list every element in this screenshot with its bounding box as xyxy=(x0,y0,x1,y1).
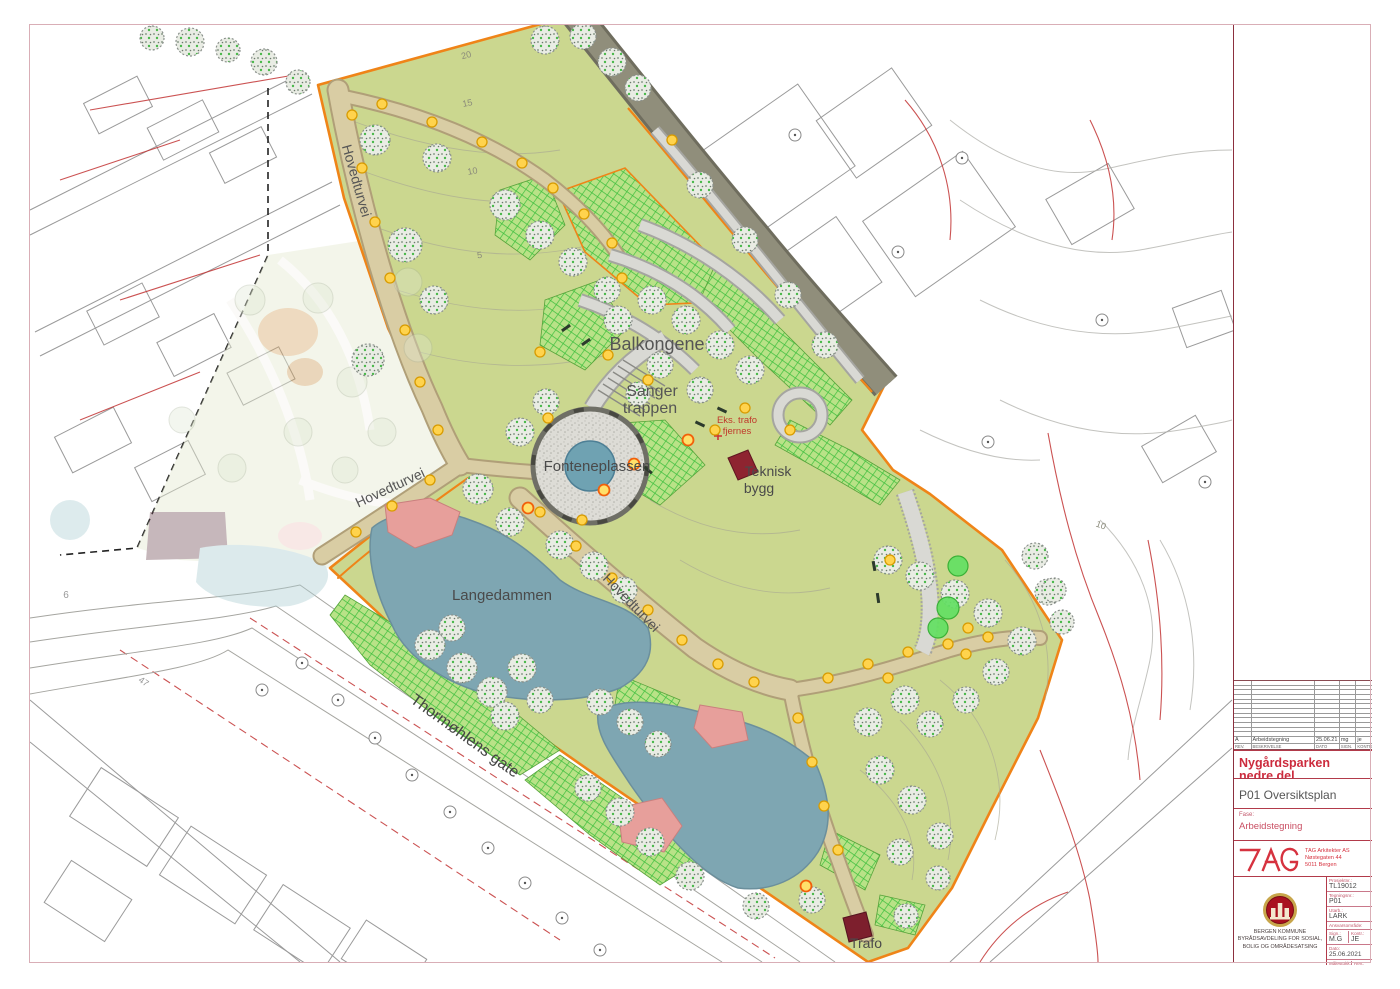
revision-header-row-kontr: KONTR. xyxy=(1355,744,1372,749)
existing-tree xyxy=(420,286,448,314)
lamp-icon xyxy=(477,137,487,147)
map-label-trappen: trappen xyxy=(623,400,677,417)
title-block-bottom: BERGEN KOMMUNE BYRÅDSAVDELING FOR SOSIAL… xyxy=(1234,876,1372,965)
lamp-icon xyxy=(749,677,759,687)
faded-tree xyxy=(394,268,422,296)
lamp-icon xyxy=(548,183,558,193)
revision-table: AArbeidstegning25.06.21mgjeREV.BESKRIVEL… xyxy=(1234,680,1372,750)
lamp-orange-icon xyxy=(801,881,812,892)
existing-tree xyxy=(388,228,422,262)
existing-tree xyxy=(598,48,626,76)
existing-tree xyxy=(1042,578,1066,602)
architect-section: TAG Arkitekter AS Nøstegaten 44 5011 Ber… xyxy=(1234,840,1372,876)
revision-header-row-description: BESKRIVELSE xyxy=(1251,744,1314,749)
lamp-icon xyxy=(370,217,380,227)
lamp-icon xyxy=(963,623,973,633)
existing-tree xyxy=(594,277,620,303)
street-tree-dot xyxy=(561,917,563,919)
faded-tree xyxy=(332,457,358,483)
existing-tree xyxy=(587,689,613,715)
existing-tree xyxy=(575,775,601,801)
field-prosjektnr: Prosjektnr.: TL19012 xyxy=(1327,877,1372,891)
field-malestokk-rev: Målestokk: 1:500 (A1) Rev.: A xyxy=(1327,959,1372,965)
existing-tree xyxy=(531,26,559,54)
existing-tree xyxy=(526,221,554,249)
existing-tree xyxy=(360,125,390,155)
existing-tree xyxy=(1050,610,1074,634)
lamp-icon xyxy=(427,117,437,127)
utarb-value: LARK xyxy=(1329,913,1370,920)
map-label-eks-trafo: Eks. trafo xyxy=(717,415,757,426)
existing-tree xyxy=(559,248,587,276)
existing-tree xyxy=(917,711,943,737)
existing-tree xyxy=(898,786,926,814)
revision-row-a: AArbeidstegning25.06.21mgje xyxy=(1234,736,1372,743)
faded-tree xyxy=(169,407,195,433)
new-tree xyxy=(928,618,948,638)
map-label-10: 10 xyxy=(467,165,479,177)
existing-tree xyxy=(1022,543,1048,569)
existing-tree xyxy=(974,599,1002,627)
existing-tree xyxy=(927,823,953,849)
existing-tree xyxy=(891,686,919,714)
lamp-icon xyxy=(833,845,843,855)
lamp-icon xyxy=(415,377,425,387)
existing-tree xyxy=(672,306,700,334)
lamp-orange-icon xyxy=(599,485,610,496)
street-tree-dot xyxy=(411,774,413,776)
lamp-icon xyxy=(387,501,397,511)
malestokk-label: Målestokk: xyxy=(1329,961,1351,965)
revision-header-row-date: DATO xyxy=(1314,744,1339,749)
existing-tree xyxy=(645,731,671,757)
existing-tree xyxy=(638,286,666,314)
existing-tree xyxy=(251,49,277,75)
existing-tree xyxy=(625,75,651,101)
street-tree-dot xyxy=(374,737,376,739)
existing-tree xyxy=(508,654,536,682)
lamp-icon xyxy=(807,757,817,767)
map-label-trafo: Trafo xyxy=(850,935,882,951)
architect-address-1: Nøstegaten 44 xyxy=(1305,855,1350,862)
lamp-icon xyxy=(667,135,677,145)
lamp-icon xyxy=(607,238,617,248)
map-label-10: 10 xyxy=(1095,519,1108,532)
faded-tree xyxy=(218,454,246,482)
faded-tree xyxy=(235,285,265,315)
map-label-sanger: Sanger xyxy=(626,383,678,400)
existing-tree xyxy=(1008,627,1036,655)
bergen-kommune-seal xyxy=(1261,891,1299,929)
lamp-icon xyxy=(385,273,395,283)
lamp-orange-icon xyxy=(523,503,534,514)
map-label-15: 15 xyxy=(461,97,473,109)
lamp-icon xyxy=(517,158,527,168)
lamp-icon xyxy=(943,639,953,649)
faded-tree xyxy=(368,418,396,446)
faded-tree xyxy=(303,283,333,313)
existing-tree xyxy=(491,702,519,730)
existing-tree xyxy=(736,356,764,384)
existing-tree xyxy=(439,615,465,641)
street-tree-dot xyxy=(794,134,796,136)
dato-value: 25.06.2021 xyxy=(1329,951,1370,958)
existing-tree xyxy=(926,866,950,890)
existing-tree xyxy=(732,227,758,253)
existing-tree xyxy=(463,474,493,504)
street-tree-dot xyxy=(449,811,451,813)
existing-tree xyxy=(140,26,164,50)
existing-tree xyxy=(743,893,769,919)
existing-tree xyxy=(216,38,240,62)
existing-tree xyxy=(490,190,520,220)
map-label-47: 47 xyxy=(137,675,151,689)
lamp-icon xyxy=(577,515,587,525)
lamp-icon xyxy=(425,475,435,485)
existing-tree xyxy=(570,23,596,49)
street-tree-dot xyxy=(524,882,526,884)
phase-section: Fase: Arbeidstegning xyxy=(1234,808,1372,840)
revision-header-row-sign: SIGN. xyxy=(1339,744,1356,749)
lamp-orange-icon xyxy=(683,435,694,446)
existing-tree xyxy=(533,389,559,415)
existing-tree xyxy=(775,282,801,308)
existing-tree xyxy=(447,653,477,683)
lamp-icon xyxy=(793,713,803,723)
project-title: Nygårdsparken nedre del xyxy=(1234,750,1372,778)
lamp-icon xyxy=(377,99,387,109)
street-tree-dot xyxy=(897,251,899,253)
existing-tree xyxy=(604,306,632,334)
existing-tree xyxy=(887,839,913,865)
street-tree-dot xyxy=(987,441,989,443)
street-tree-dot xyxy=(961,157,963,159)
field-dato: Dato: 25.06.2021 xyxy=(1327,944,1372,959)
lamp-icon xyxy=(535,347,545,357)
existing-tree xyxy=(606,798,634,826)
lamp-icon xyxy=(710,425,720,435)
lamp-icon xyxy=(823,673,833,683)
existing-tree xyxy=(953,687,979,713)
lamp-icon xyxy=(571,541,581,551)
kontr-value: JE xyxy=(1351,936,1370,943)
lamp-icon xyxy=(400,325,410,335)
existing-tree xyxy=(894,904,918,928)
existing-tree xyxy=(527,687,553,713)
existing-tree xyxy=(983,659,1009,685)
existing-tree xyxy=(647,352,673,378)
lamp-icon xyxy=(785,425,795,435)
street-tree-dot xyxy=(337,699,339,701)
architect-name: TAG Arkitekter AS xyxy=(1305,848,1350,855)
field-utarb: Utarb.: LARK xyxy=(1327,906,1372,921)
field-sign-kontr: Sign.: M.G Kontr.: JE xyxy=(1327,929,1372,944)
map-label-6: 6 xyxy=(63,590,69,601)
existing-tree xyxy=(506,418,534,446)
lamp-icon xyxy=(819,801,829,811)
client-line-2: BYRÅDSAVDELING FOR SOSIAL, xyxy=(1238,936,1322,943)
plan-sheet: HovedturveiHovedturveiHovedturveiThormøh… xyxy=(0,0,1400,989)
lamp-icon xyxy=(863,659,873,669)
existing-tree xyxy=(906,562,934,590)
revision-header-row: REV.BESKRIVELSEDATOSIGN.KONTR. xyxy=(1234,743,1372,749)
title-block-spacer xyxy=(1234,24,1372,680)
street-tree-dot xyxy=(301,662,303,664)
existing-tree xyxy=(687,172,713,198)
faded-tree xyxy=(284,418,312,446)
lamp-icon xyxy=(579,209,589,219)
field-tegningsnr: Tegningsnr.: P01 xyxy=(1327,891,1372,906)
existing-tree xyxy=(496,508,524,536)
existing-tree xyxy=(812,332,838,358)
tegningsnr-value: P01 xyxy=(1329,898,1370,905)
lamp-icon xyxy=(983,632,993,642)
existing-tree xyxy=(546,531,574,559)
architect-address-2: 5011 Bergen xyxy=(1305,862,1350,869)
ansvar-label: Ansvarsområde: xyxy=(1329,923,1370,928)
drawing-title: P01 Oversiktsplan xyxy=(1234,778,1372,808)
new-tree xyxy=(948,556,968,576)
lamp-icon xyxy=(885,555,895,565)
existing-tree xyxy=(617,709,643,735)
existing-tree xyxy=(352,344,384,376)
map-label-teknisk: Teknisk xyxy=(745,463,793,479)
title-block: AArbeidstegning25.06.21mgjeREV.BESKRIVEL… xyxy=(1233,24,1372,963)
street-tree-dot xyxy=(599,949,601,951)
revision-header-row-rev: REV. xyxy=(1234,744,1251,749)
existing-tree xyxy=(636,828,664,856)
existing-tree xyxy=(854,708,882,736)
phase-label: Fase: xyxy=(1239,812,1367,818)
lamp-icon xyxy=(961,649,971,659)
existing-tree xyxy=(687,377,713,403)
sign-value: M.G xyxy=(1329,936,1348,943)
faded-tree xyxy=(404,334,432,362)
lamp-icon xyxy=(883,673,893,683)
existing-tree xyxy=(423,144,451,172)
lamp-icon xyxy=(617,273,627,283)
lamp-icon xyxy=(543,413,553,423)
existing-tree xyxy=(580,552,608,580)
field-ansvar: Ansvarsområde: xyxy=(1327,921,1372,929)
new-tree xyxy=(937,597,959,619)
lamp-icon xyxy=(347,110,357,120)
lamp-icon xyxy=(903,647,913,657)
existing-tree xyxy=(676,862,704,890)
lamp-icon xyxy=(535,507,545,517)
client-section: BERGEN KOMMUNE BYRÅDSAVDELING FOR SOSIAL… xyxy=(1234,877,1326,965)
phase-value: Arbeidstegning xyxy=(1239,821,1367,832)
map-label-fonteneplassen: Fonteneplassen xyxy=(544,458,651,475)
title-block-fields: Prosjektnr.: TL19012 Tegningsnr.: P01 Ut… xyxy=(1326,877,1372,965)
client-line-3: BOLIG OG OMRÅDESATSING xyxy=(1243,944,1318,951)
street-tree-dot xyxy=(261,689,263,691)
street-tree-dot xyxy=(1101,319,1103,321)
existing-tree xyxy=(866,756,894,784)
street-tree-dot xyxy=(487,847,489,849)
map-label-langedammen: Langedammen xyxy=(452,587,552,604)
lamp-icon xyxy=(351,527,361,537)
map-label-balkongene: Balkongene xyxy=(609,334,704,354)
street-tree-dot xyxy=(1204,481,1206,483)
existing-tree xyxy=(176,28,204,56)
map-label-bygg: bygg xyxy=(744,480,774,496)
existing-tree xyxy=(286,70,310,94)
site-plan-map: HovedturveiHovedturveiHovedturveiThormøh… xyxy=(0,0,1400,989)
architect-address: TAG Arkitekter AS Nøstegaten 44 5011 Ber… xyxy=(1305,848,1350,869)
existing-tree xyxy=(706,331,734,359)
prosjektnr-value: TL19012 xyxy=(1329,883,1370,890)
lamp-icon xyxy=(433,425,443,435)
tag-logo xyxy=(1239,845,1301,873)
lamp-icon xyxy=(677,635,687,645)
lamp-icon xyxy=(713,659,723,669)
lamp-icon xyxy=(740,403,750,413)
map-label-fjernes: fjernes xyxy=(723,426,752,437)
